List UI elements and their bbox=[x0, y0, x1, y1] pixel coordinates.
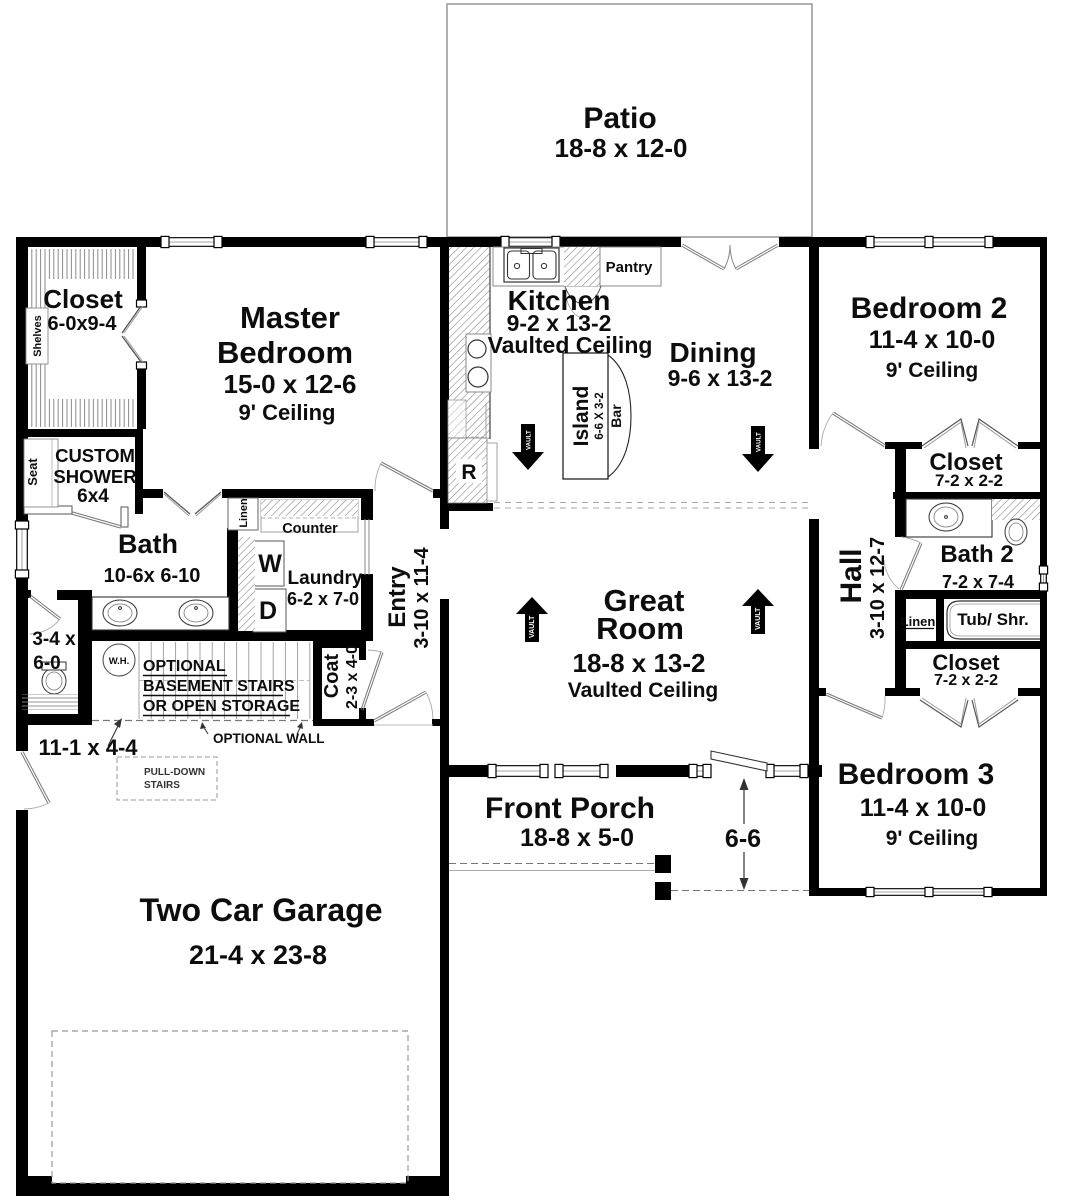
svg-text:Vaulted Ceiling: Vaulted Ceiling bbox=[488, 332, 653, 358]
svg-text:Room: Room bbox=[596, 611, 684, 646]
svg-text:Bar: Bar bbox=[608, 404, 624, 428]
svg-text:D: D bbox=[259, 597, 277, 625]
svg-text:7-2 x 7-4: 7-2 x 7-4 bbox=[942, 572, 1014, 592]
svg-text:Vaulted Ceiling: Vaulted Ceiling bbox=[568, 679, 719, 702]
svg-text:7-2 x 2-2: 7-2 x 2-2 bbox=[934, 672, 998, 689]
svg-text:Bath 2: Bath 2 bbox=[940, 541, 1013, 568]
svg-text:Counter: Counter bbox=[282, 521, 338, 537]
svg-text:CUSTOM: CUSTOM bbox=[55, 445, 135, 466]
svg-text:9-6 x 13-2: 9-6 x 13-2 bbox=[668, 365, 773, 391]
svg-text:W.H.: W.H. bbox=[109, 656, 130, 667]
svg-text:Dining: Dining bbox=[669, 337, 756, 368]
svg-text:Bedroom 2: Bedroom 2 bbox=[851, 292, 1008, 325]
svg-text:Hall: Hall bbox=[835, 548, 868, 603]
svg-text:6-6: 6-6 bbox=[725, 825, 761, 853]
svg-text:Two Car Garage: Two Car Garage bbox=[139, 892, 382, 928]
svg-text:Island: Island bbox=[570, 386, 593, 447]
svg-text:Bedroom: Bedroom bbox=[217, 335, 353, 370]
svg-text:Linen: Linen bbox=[901, 614, 936, 629]
svg-text:2-3 x 4-0: 2-3 x 4-0 bbox=[344, 645, 361, 709]
svg-text:Bath: Bath bbox=[118, 529, 178, 559]
svg-text:Shelves: Shelves bbox=[32, 315, 44, 357]
svg-text:Pantry: Pantry bbox=[606, 259, 653, 276]
svg-text:3-10 x 11-4: 3-10 x 11-4 bbox=[411, 547, 433, 649]
svg-text:Tub/ Shr.: Tub/ Shr. bbox=[957, 610, 1028, 629]
svg-text:6-0x9-4: 6-0x9-4 bbox=[48, 313, 118, 335]
svg-text:7-2 x 2-2: 7-2 x 2-2 bbox=[935, 471, 1003, 490]
svg-text:10-6x 6-10: 10-6x 6-10 bbox=[104, 565, 201, 587]
svg-text:6-0: 6-0 bbox=[33, 653, 60, 674]
svg-text:Seat: Seat bbox=[25, 458, 40, 486]
svg-text:Linen: Linen bbox=[238, 498, 250, 528]
svg-text:11-4 x 10-0: 11-4 x 10-0 bbox=[869, 326, 996, 354]
svg-text:STAIRS: STAIRS bbox=[144, 780, 180, 791]
svg-text:Patio: Patio bbox=[583, 102, 656, 135]
svg-text:BASEMENT STAIRS: BASEMENT STAIRS bbox=[143, 678, 295, 695]
svg-text:VAULT: VAULT bbox=[755, 607, 762, 630]
svg-text:R: R bbox=[461, 461, 476, 484]
svg-text:Laundry: Laundry bbox=[288, 568, 363, 589]
svg-text:6-6 X 3-2: 6-6 X 3-2 bbox=[594, 392, 606, 439]
svg-text:Entry: Entry bbox=[384, 566, 411, 628]
svg-text:Closet: Closet bbox=[43, 284, 123, 314]
svg-text:11-1 x 4-4: 11-1 x 4-4 bbox=[38, 735, 138, 760]
svg-text:9' Ceiling: 9' Ceiling bbox=[239, 400, 336, 425]
svg-text:18-8 x 5-0: 18-8 x 5-0 bbox=[520, 824, 634, 852]
svg-text:W: W bbox=[258, 550, 282, 578]
svg-text:3-10 x 12-7: 3-10 x 12-7 bbox=[867, 537, 889, 639]
svg-text:VAULT: VAULT bbox=[529, 615, 536, 638]
svg-text:Coat: Coat bbox=[321, 653, 343, 698]
svg-text:Master: Master bbox=[240, 300, 340, 335]
svg-text:9' Ceiling: 9' Ceiling bbox=[886, 359, 979, 382]
svg-text:11-4 x 10-0: 11-4 x 10-0 bbox=[860, 794, 987, 822]
svg-text:OR OPEN STORAGE: OR OPEN STORAGE bbox=[143, 698, 300, 715]
svg-text:OPTIONAL WALL: OPTIONAL WALL bbox=[213, 731, 325, 746]
svg-text:Front Porch: Front Porch bbox=[485, 792, 655, 825]
svg-text:VAULT: VAULT bbox=[525, 430, 532, 450]
svg-text:Bedroom 3: Bedroom 3 bbox=[838, 758, 995, 791]
svg-text:21-4 x 23-8: 21-4 x 23-8 bbox=[189, 940, 327, 970]
svg-text:18-8 x 12-0: 18-8 x 12-0 bbox=[555, 133, 688, 163]
svg-text:3-4 x: 3-4 x bbox=[32, 629, 76, 650]
svg-text:PULL-DOWN: PULL-DOWN bbox=[144, 767, 205, 778]
svg-text:18-8 x 13-2: 18-8 x 13-2 bbox=[573, 648, 706, 678]
svg-text:9' Ceiling: 9' Ceiling bbox=[886, 827, 979, 850]
svg-text:OPTIONAL: OPTIONAL bbox=[143, 658, 226, 675]
svg-text:15-0 x 12-6: 15-0 x 12-6 bbox=[224, 369, 357, 399]
svg-text:6-2 x 7-0: 6-2 x 7-0 bbox=[287, 589, 359, 609]
svg-text:SHOWER: SHOWER bbox=[53, 466, 136, 487]
svg-text:VAULT: VAULT bbox=[755, 432, 762, 452]
svg-text:6x4: 6x4 bbox=[77, 486, 109, 507]
